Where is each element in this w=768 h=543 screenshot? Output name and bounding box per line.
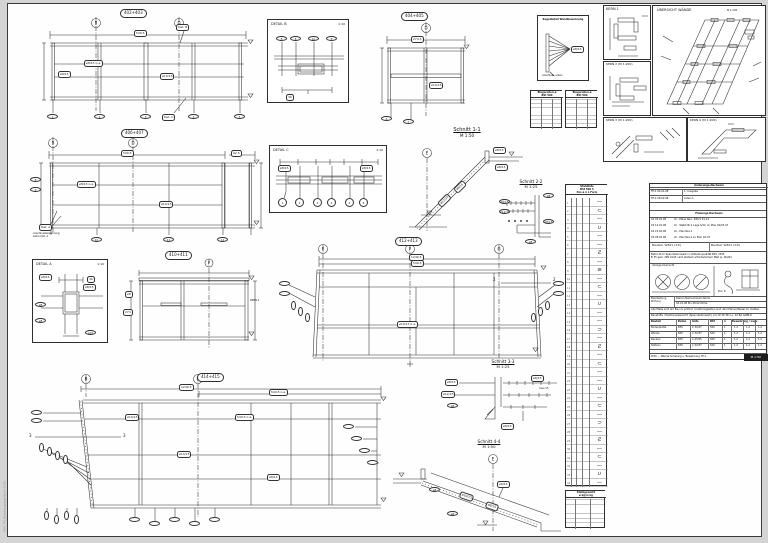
stamp-right-caption: Pos. 8	[718, 290, 725, 293]
elevation-402-403: B D 402+403 549.5 Det. B Det. C ø8/15 ü.…	[34, 9, 262, 127]
kern-reference: KERN 4	[250, 299, 259, 302]
rebar-label: ø8/15	[58, 71, 71, 78]
position-bubble: ø8	[35, 318, 46, 323]
position-bubble	[553, 281, 564, 286]
drawing-sheet-stage: B D 402+403 549.5 Det. B Det. C ø8/15 ü.…	[0, 0, 768, 543]
position-bubble	[351, 436, 362, 441]
schnitt-3-3-title: Schnitt 3-3M 1:25	[475, 359, 531, 369]
position-bubble	[47, 447, 52, 456]
rebar-label: ø12/15	[441, 391, 455, 398]
position-bubble: ø8	[429, 487, 440, 492]
position-bubble: 10	[308, 36, 319, 41]
kern3-plan	[604, 118, 688, 163]
kern3-box: KERN 3 (M 1:200)	[603, 117, 687, 162]
position-bubble: ø10	[85, 330, 96, 335]
col-header: BSt	[710, 320, 715, 323]
level-mark-icon	[249, 332, 254, 336]
plan-row: 02 03.01.08	[651, 218, 666, 221]
dim-label: 274.5	[411, 36, 424, 43]
rebar-label: ø8/15	[495, 164, 508, 171]
position-bubble: 1	[47, 114, 58, 119]
level-mark-icon	[254, 221, 259, 225]
elevation-406-407: B D 406+407 549.5 92.5 ø8/15 ü.a. ø10/15…	[29, 129, 265, 247]
plan-row: 04 21.02.08	[651, 230, 666, 233]
position-bubble	[545, 301, 550, 310]
section-3-marker: 3	[123, 433, 126, 438]
revision-desc: 1. Ausgabe	[684, 190, 698, 193]
schnitt-4-4: Schnitt 4-4M 1:50 E ø10/15 ø8/15 ø8 ø8/1…	[391, 439, 569, 537]
mini-table-1-header: Biegerollen-øBSt 500	[531, 91, 563, 98]
detail-c-box: DETAIL C 1:10 ø8/15 ø8/15 1 2 3 4 5 6	[269, 145, 387, 213]
dim-label: 549.5	[121, 150, 134, 157]
rebar-label: ø10/15	[160, 73, 174, 80]
check-note: Alle Maße sind am Bau zu prüfen! Unstimm…	[651, 308, 767, 311]
position-bubble: 8	[326, 36, 337, 41]
dim-label: 549.5 ü.a.	[269, 389, 288, 396]
position-bubble	[55, 451, 60, 460]
drawing-number-capsule: 402+403	[120, 9, 147, 18]
elevation-404-405: D 404+405 274.5 ø10/15 6 7	[379, 12, 471, 126]
sheet-frame: B D 402+403 549.5 Det. B Det. C ø8/15 ü.…	[7, 3, 762, 537]
revision-row: TP-2 28.02.08	[651, 197, 668, 200]
steel-summary-header: Stahlgewichtø kg/m kg	[566, 491, 606, 498]
position-bubble	[279, 281, 290, 286]
position-bubble: ø8	[447, 511, 458, 516]
position-bubble	[359, 448, 370, 453]
bauteil-left: Bauteil: W301 (±0)	[652, 244, 681, 248]
position-bubble: ø8/15	[543, 219, 554, 224]
elevation-410-411: F 410+411 ø8 KERN 4 274	[121, 251, 261, 356]
plan-register-header: Planungs-Nachweis	[650, 212, 768, 215]
position-bubble	[44, 511, 49, 520]
col-header: Güte	[692, 320, 699, 323]
position-bubble: 10	[91, 237, 102, 242]
stahlliste-rows: 1 2 3 4 5 6 7 8 9 10 11 12 13 14 15 16 1…	[566, 198, 608, 487]
rebar-label: ø8/15	[501, 423, 514, 430]
position-bubble: 1	[278, 198, 287, 207]
mini-table-1: Biegerollen-øBSt 500	[530, 90, 562, 128]
rebar-label: ø10/15	[125, 414, 139, 421]
note-foot: Anschluss unten	[542, 74, 586, 77]
position-bubble	[531, 313, 536, 322]
level-mark-icon	[381, 397, 386, 401]
position-bubble: ø8/15	[499, 199, 510, 204]
dim-label: 30	[286, 94, 294, 101]
rebar-label: ø8/15	[493, 147, 506, 154]
position-bubble	[31, 418, 42, 423]
position-bubble: 5	[345, 198, 354, 207]
table-cell: Decken	[651, 338, 660, 341]
position-bubble: 3	[140, 114, 151, 119]
dim-note: max.15	[539, 387, 548, 390]
kern2-plan	[604, 62, 652, 117]
plan-desc: LV - Plan Rev.1	[674, 230, 692, 233]
mini-table-2: Biegerollen-øBSt 500	[565, 90, 597, 128]
stahlliste-header: StahllisteBSt 500 SPos ø n L Form	[566, 185, 608, 195]
table-cell: Wände	[651, 332, 660, 335]
uebersicht-plan	[653, 6, 767, 117]
drawing-number-capsule: 406+407	[121, 129, 148, 138]
elevation-402-403-linework: B D	[34, 9, 262, 127]
position-bubble	[129, 517, 140, 522]
rebar-label: ø8/15	[497, 481, 510, 488]
schnitt-1-1-title: Schnitt 1-1M 1:50	[437, 127, 497, 138]
kern1-box: KERN 1	[603, 5, 651, 60]
rebar-label: ø10/15 ü.a.	[397, 321, 418, 328]
schnitt-4-4-linework: E	[391, 439, 569, 537]
svg-text:F: F	[208, 261, 211, 266]
schnitt-2-2-title: Schnitt 2-2M 1:25	[505, 179, 557, 189]
position-bubble	[209, 517, 220, 522]
position-bubble: 8	[276, 36, 287, 41]
kern2-box: KERN 2 (M 1:200)	[603, 61, 651, 116]
rebar-label: ø10/15	[177, 451, 191, 458]
svg-text:F: F	[409, 247, 412, 252]
svg-text:E: E	[322, 247, 325, 252]
position-bubble	[291, 301, 296, 310]
footer-scale: M 1:50	[744, 354, 768, 361]
position-bubble	[31, 410, 42, 415]
position-bubble: 4	[327, 198, 336, 207]
level-mark-icon	[399, 473, 404, 477]
level-mark-icon	[483, 521, 488, 525]
title-block: Änderungs-Nachweis TP-1 04.01.08 1. Ausg…	[649, 183, 767, 360]
dim-label: 30	[87, 276, 95, 283]
plan-row: 05 28.02.08	[651, 236, 666, 239]
elevation-414-415: B D 414+415 1249.5 549.5 ü.a.	[29, 367, 393, 531]
position-bubble	[279, 291, 290, 296]
level-mark-icon	[381, 498, 386, 502]
detail-b-reference: Det. B	[176, 24, 189, 31]
position-bubble: 11	[163, 237, 174, 242]
position-bubble	[538, 307, 543, 316]
drawing-number-capsule: 414+415	[197, 373, 224, 382]
concrete-note: Beton B im Spannbetonwerk in Ortbetonqua…	[651, 253, 767, 259]
rebar-label: ø10/15	[159, 201, 173, 208]
section-3-marker: 3	[29, 433, 32, 438]
col-header: Bewehrung / Lage	[732, 320, 757, 323]
drawing-number-capsule: 412+413	[395, 237, 422, 246]
stahlliste-bend-shapes: — ⊂ — ∪ — — Ƨ — ≡ — ⊂ — ∪ — — ⊃ — Ƨ — ⊂ …	[592, 198, 607, 487]
rebar-label: ø8/15	[39, 274, 52, 281]
detail-a-box: DETAIL A 1:10 ø8/15 ø8/15 30 ø8 ø8 ø10	[32, 259, 108, 343]
schnitt-3-3: Schnitt 3-3M 1:25 ø8/15 ø12/15 ø8 ø8/15 …	[439, 359, 567, 435]
position-bubble: 8	[30, 177, 41, 182]
rebar-label: ø8/15	[360, 165, 373, 172]
position-bubble: 3	[313, 198, 322, 207]
uebersicht-waende-box: ÜBERSICHT WÄNDE M 1:200	[652, 5, 766, 116]
dim-label: 549.5 ü.a.	[235, 414, 254, 421]
col-header: n	[724, 320, 726, 323]
margin-plot-note: W30_TP1_Bewehrung.dwg Plot 04.01.08	[3, 442, 6, 532]
position-bubble	[64, 511, 69, 520]
position-bubble: 6	[381, 116, 392, 121]
position-bubble: 6	[359, 198, 368, 207]
plan-desc: LV - Pläne Rev.: 834 S 01-12	[674, 218, 709, 221]
detail-c-reference: Det. C	[162, 114, 175, 121]
dim-label: 274	[123, 309, 133, 316]
revision-desc: Index A	[684, 197, 693, 200]
position-bubble	[553, 291, 564, 296]
revision-table-header: Änderungs-Nachweis	[650, 184, 768, 188]
detail-b-box: DETAIL B 1:10 8 8 10 8 30	[267, 19, 349, 103]
rebar-label: ø8/15	[445, 379, 458, 386]
plan-row: 03 14.01.08	[651, 224, 666, 227]
position-bubble: 8	[290, 36, 301, 41]
revision-row: TP-1 04.01.08	[651, 190, 668, 193]
table-cell: Stützen	[651, 344, 661, 347]
detail-b-linework	[268, 20, 350, 104]
approval-cols: Datum Name Datum Name	[676, 297, 710, 300]
section-2-marker: 2	[493, 277, 496, 282]
steel-summary-table: Stahlgewichtø kg/m kg	[565, 490, 605, 528]
drawing-number-capsule: 410+411	[165, 251, 192, 260]
position-bubble	[305, 313, 310, 322]
svg-text:G: G	[497, 247, 500, 252]
plan-desc: LV - Plan Rev.1 zu Plan 02-07	[674, 236, 710, 239]
position-bubble	[74, 515, 79, 524]
position-bubble	[63, 455, 68, 464]
position-bubble: 2	[94, 114, 105, 119]
mini-table-2-header: Biegerollen-øBSt 500	[566, 91, 598, 98]
table-cell: Bodenplatte	[651, 326, 666, 329]
position-bubble: 9	[30, 187, 41, 192]
rebar-label: ø8/15 ü.a.	[77, 181, 96, 188]
svg-text:E: E	[492, 457, 495, 462]
kern4-plan	[688, 118, 767, 163]
approval-row: 04.01.08 Mu 28.02.08 Ke	[676, 302, 707, 305]
position-bubble	[54, 515, 59, 524]
level-mark-icon	[248, 40, 253, 44]
position-bubble: 12	[217, 237, 228, 242]
level-mark-icon	[541, 266, 546, 270]
rebar-label: ø8/15	[83, 284, 96, 291]
schnitt-4-4-title: Schnitt 4-4M 1:50	[463, 439, 515, 449]
kern4-box: KERN 4 (M 1:200)	[687, 117, 766, 162]
approval-label: Bearbeitung Prüfung	[651, 297, 673, 303]
position-bubble: ø8	[35, 302, 46, 307]
svg-text:D: D	[131, 141, 134, 146]
rebar-label: ø10/15	[429, 82, 443, 89]
footer-title: W30 — Wände Schalung u. Bewehrung TP-1	[651, 355, 706, 358]
col-header: Beton	[678, 320, 686, 323]
detail-a-reference: Det. A	[39, 224, 52, 231]
rebar-label: ø8/15	[531, 375, 544, 382]
kern1-plan	[604, 6, 652, 61]
bauteil-right: Bauteil: W301 (±0)	[711, 244, 740, 248]
elevation-410-411-linework: F	[121, 251, 261, 356]
level-mark-icon	[249, 276, 254, 280]
position-bubble	[189, 521, 200, 526]
drawing-number-capsule: 404+405	[401, 12, 428, 21]
svg-text:D: D	[424, 26, 427, 31]
dim-label: 549.5	[411, 260, 424, 267]
regeldetail-note-box: Regeldetail Wandbewehrung ø8/15 Anschlus…	[537, 15, 589, 81]
position-bubble	[343, 424, 354, 429]
level-mark-icon	[533, 348, 538, 352]
position-bubble: 5	[234, 114, 245, 119]
position-bubble: 2	[295, 198, 304, 207]
position-bubble: ø12/15	[499, 209, 510, 214]
elevation-404-405-linework: D	[379, 12, 471, 126]
position-bubble: ø8	[447, 403, 458, 408]
rebar-label: ø8/15 ü.a.	[84, 60, 103, 67]
position-bubble	[367, 460, 378, 465]
elevation-414-415-linework: B D	[29, 367, 393, 531]
rebar-label: ø8/15	[278, 165, 291, 172]
svg-text:B: B	[85, 377, 88, 382]
svg-text:B: B	[95, 21, 98, 26]
svg-text:B: B	[52, 141, 55, 146]
stamp-graphics	[650, 264, 768, 296]
dim-label: 92.5	[231, 150, 242, 157]
svg-text:E: E	[426, 151, 429, 156]
position-bubble: 4	[188, 114, 199, 119]
dim-label: 549.5	[134, 30, 147, 37]
rebar-label: ø8/15	[267, 474, 280, 481]
rebar-label: ø8/15	[571, 46, 584, 53]
level-mark-icon	[248, 94, 253, 98]
plan-desc: LV - Statik Nr.1 Lage S/12, zu Plan 02/0…	[674, 224, 728, 227]
main-table-title: Baustoffe / Positionsübersicht (Spannbet…	[651, 314, 767, 317]
col-header: Bauteil	[651, 320, 661, 323]
dim-label: 1249.5	[179, 384, 194, 391]
stahlliste: StahllisteBSt 500 SPos ø n L Form 1 2 3 …	[565, 184, 607, 486]
level-mark-icon	[509, 152, 514, 156]
position-bubble: ø8	[543, 193, 554, 198]
position-bubble: 7	[403, 119, 414, 124]
position-bubble	[169, 517, 180, 522]
elevation-412-413: E F G 412+413 1249.5 549.5 ø10/15 ü.a. 2…	[279, 237, 565, 369]
position-bubble	[298, 307, 303, 316]
rebar-label: ø8	[125, 291, 133, 298]
elevation-406-407-linework: B D	[29, 129, 265, 247]
position-bubble	[149, 521, 160, 526]
position-bubble	[39, 443, 44, 452]
